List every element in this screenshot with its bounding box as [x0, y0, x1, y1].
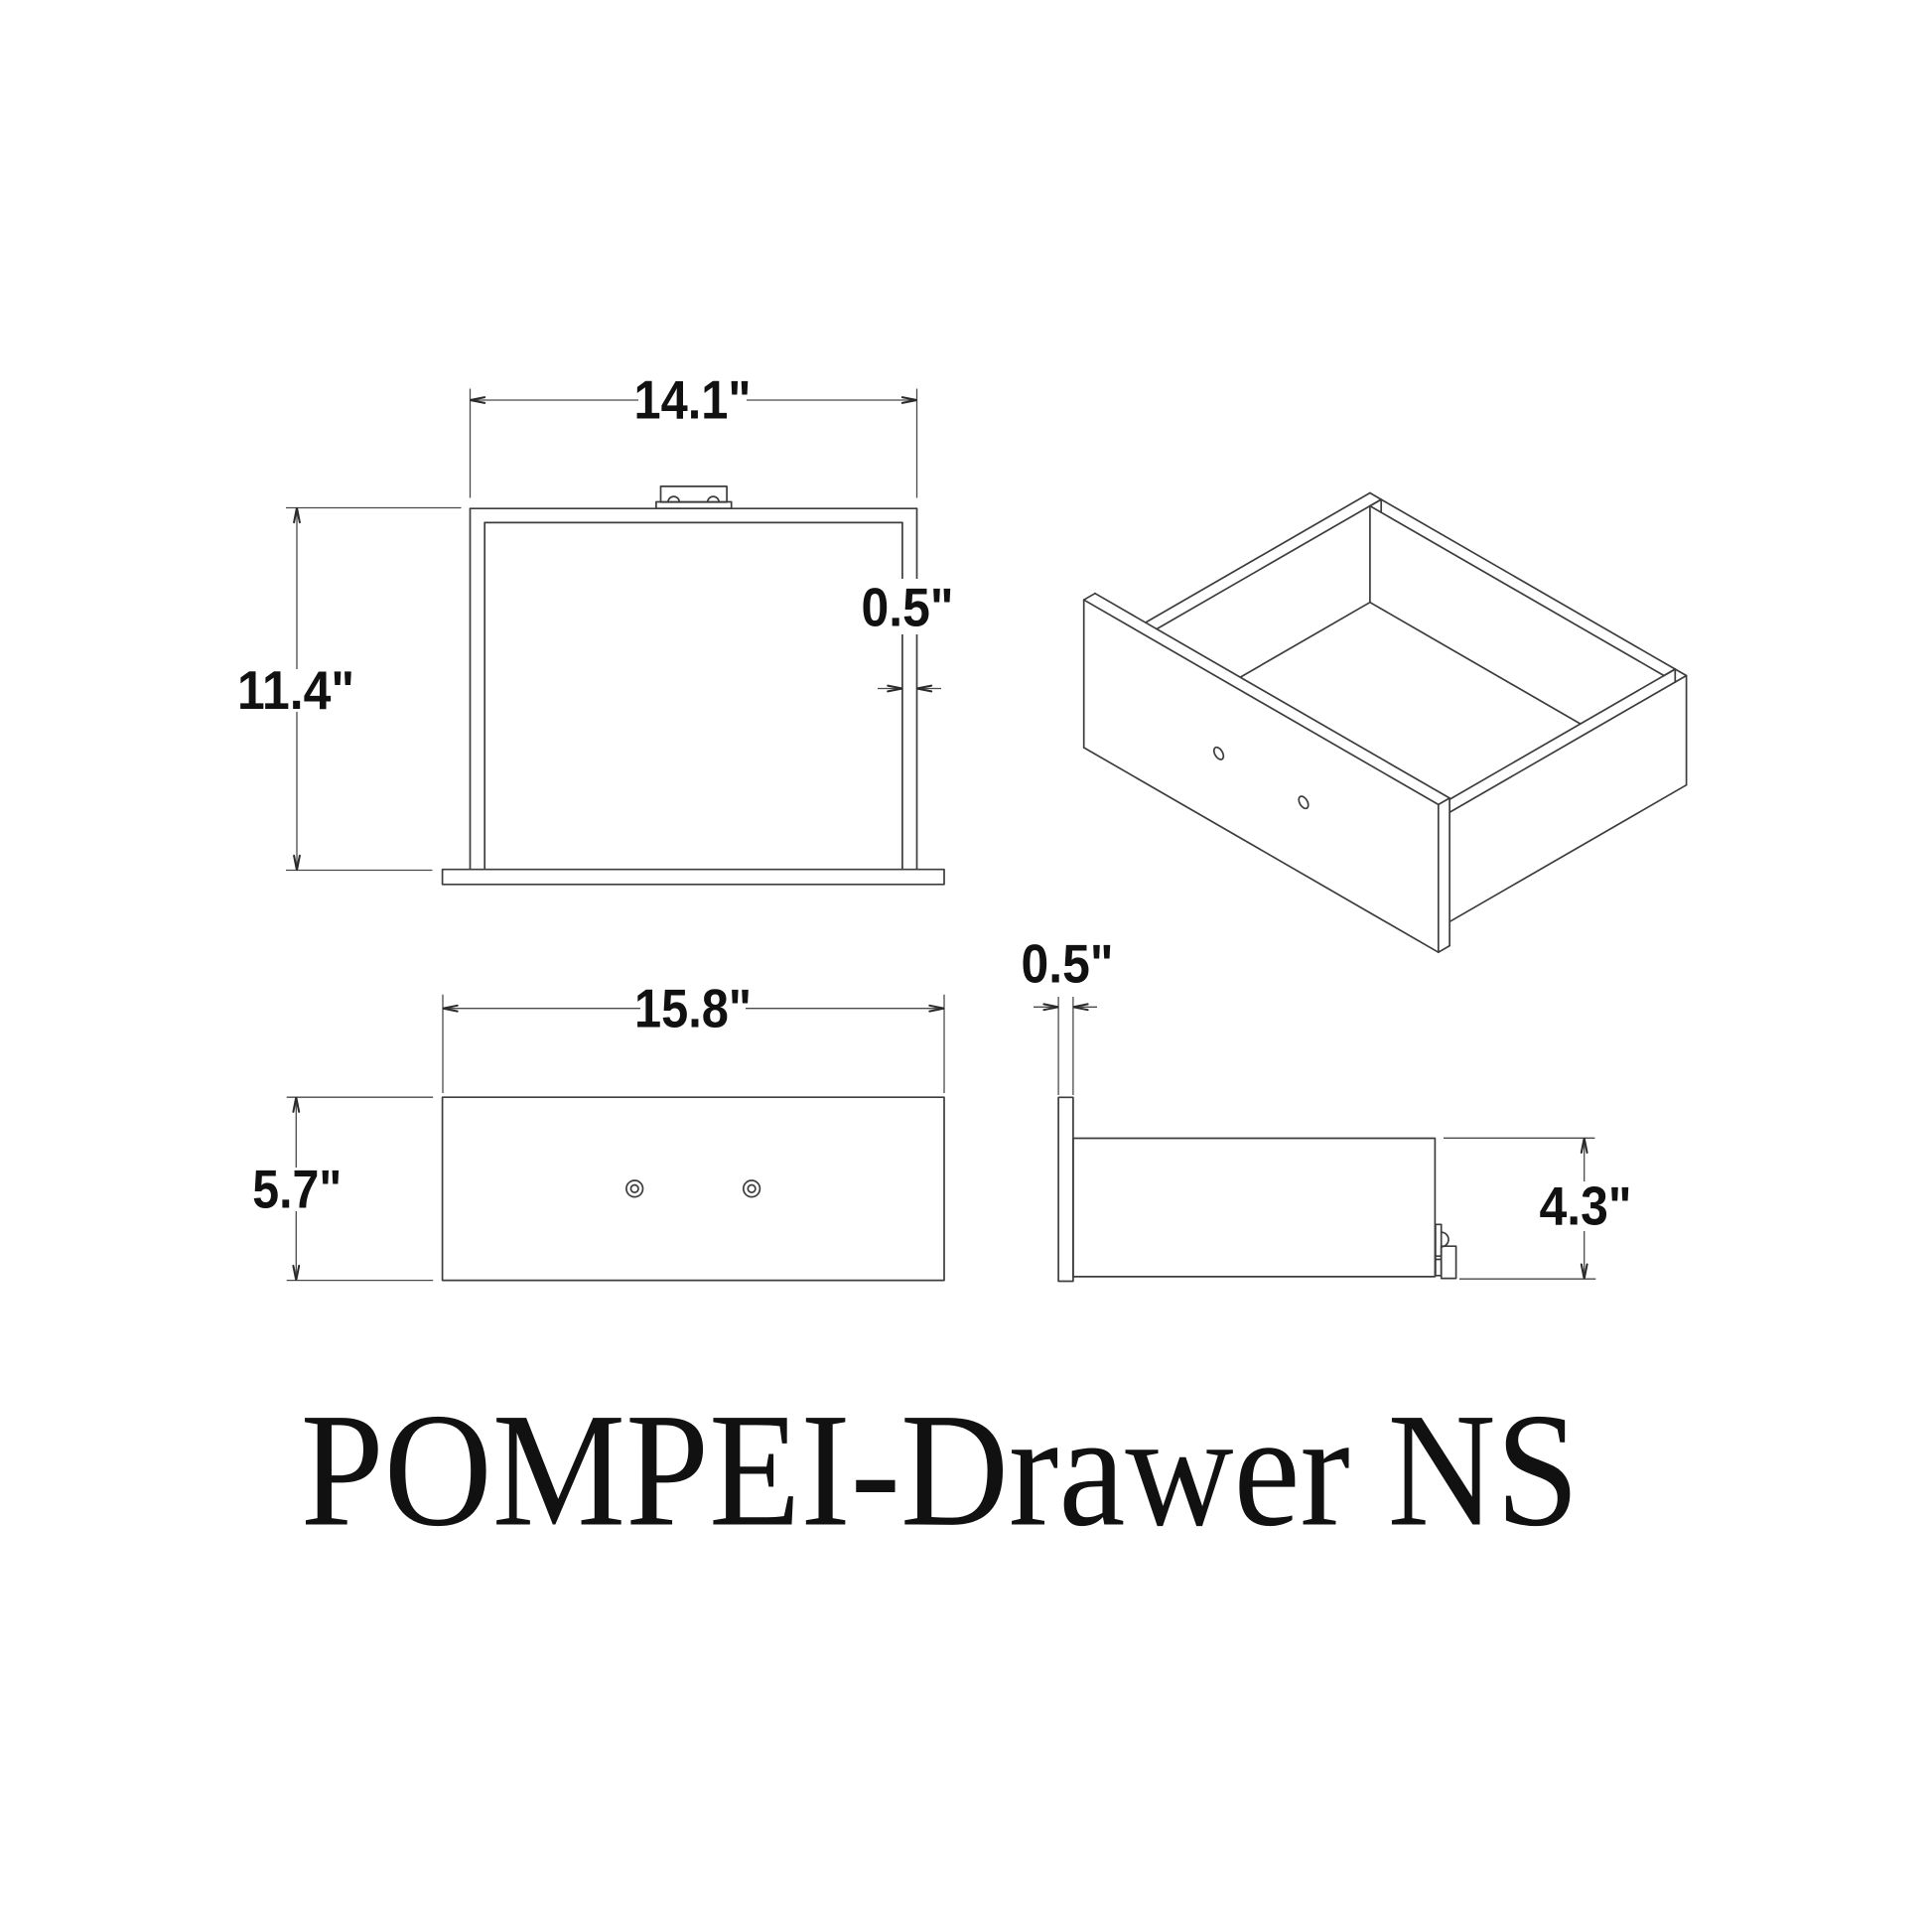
svg-text:5.7": 5.7": [252, 1159, 342, 1220]
svg-text:15.8": 15.8": [634, 978, 752, 1039]
svg-text:4.3": 4.3": [1540, 1175, 1632, 1237]
svg-text:0.5": 0.5": [1022, 933, 1114, 995]
svg-text:14.1": 14.1": [634, 369, 752, 431]
svg-text:POMPEI-Drawer NS: POMPEI-Drawer NS: [301, 1381, 1580, 1561]
svg-text:0.5": 0.5": [862, 577, 954, 638]
svg-text:11.4": 11.4": [237, 659, 354, 721]
